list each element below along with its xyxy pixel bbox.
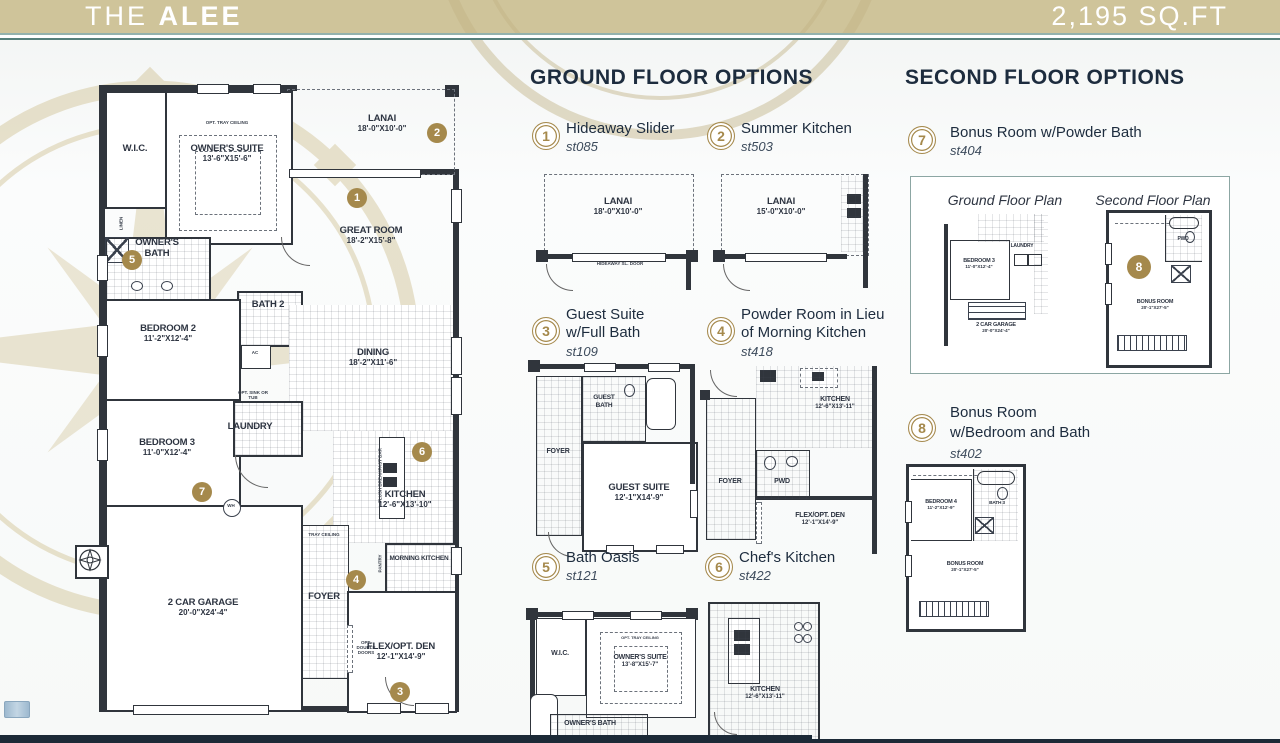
- option-label: w/Bedroom and Bath: [950, 424, 1090, 441]
- stairs: [1117, 335, 1187, 351]
- door-swing: [710, 370, 737, 397]
- room-dims: 12'-1"X14'-9": [594, 493, 684, 502]
- wall: [686, 250, 698, 262]
- room-label: BATH 3: [983, 501, 1011, 507]
- room-label: FLEX/OPT. DEN: [351, 641, 451, 652]
- wall: [528, 360, 540, 372]
- room-bedroom2: [105, 299, 241, 401]
- room-dims: 20'-1"X27'-5": [1119, 305, 1191, 310]
- opt-double-doors: [756, 502, 762, 544]
- diagram-hideaway-slider: LANAI 18'-0"X10'-0" HIDEAWAY SL. DOOR: [528, 164, 700, 304]
- room-dims: 13'-6"X15'-6": [187, 154, 267, 163]
- room-label: LANAI: [322, 113, 442, 124]
- room-label: W.I.C.: [536, 650, 584, 658]
- second-options-title: SECOND FLOOR OPTIONS: [905, 66, 1185, 90]
- window: [97, 255, 108, 281]
- square-footage: 2,195 SQ.FT: [1051, 1, 1228, 32]
- option-code: st109: [566, 344, 598, 359]
- option-circle-7: 7: [908, 126, 936, 154]
- door-swing: [546, 264, 573, 291]
- room-label: GREAT ROOM: [311, 225, 431, 236]
- room-dims: 12'-1"X14'-9": [351, 652, 451, 661]
- door-swing: [723, 264, 750, 291]
- tray-note: OPT. TRAY CEILING: [610, 636, 670, 640]
- door-swing: [281, 237, 310, 266]
- linen-note: LINEN: [120, 212, 125, 234]
- marker-2: 2: [427, 123, 447, 143]
- wall: [944, 224, 948, 346]
- option-code: st121: [566, 568, 598, 583]
- room-label: FLEX/OPT. DEN: [766, 512, 874, 520]
- diagram-chefs-kitchen: KITCHEN 12'-6"X13'-11": [706, 596, 828, 743]
- marker-3: 3: [390, 682, 410, 702]
- option-circle-6: 6: [705, 553, 733, 581]
- window: [451, 337, 462, 375]
- tub-fixture: [646, 378, 676, 430]
- room-dims: 13'-8"X15'-7": [610, 662, 670, 669]
- wall: [686, 262, 691, 290]
- marker-7: 7: [192, 482, 212, 502]
- option-label: Powder Room in Lieu: [741, 306, 884, 323]
- diagram-bonus-bedroom-bath: BEDROOM 4 11'-2"X12'-9" BATH 3 BONUS ROO…: [906, 464, 1026, 632]
- plan-title-name: ALEE: [159, 1, 243, 31]
- room-dims: 20'-0"X24'-4": [143, 608, 263, 617]
- room-dims: 11'-2"X12'-4": [108, 334, 228, 343]
- room-label: BEDROOM 3: [107, 437, 227, 448]
- room-dims: 12'-1"X14'-9": [766, 520, 874, 527]
- option-code: st402: [950, 446, 982, 461]
- option-label: w/Full Bath: [566, 324, 640, 341]
- diagram-summer-kitchen: LANAI 15'-0"X10'-0": [705, 164, 880, 304]
- option-circle-2: 2: [707, 122, 735, 150]
- tray-note: OPT. TRAY CEILING: [197, 121, 257, 126]
- room-dims: 20'-0"X24'-4": [960, 328, 1032, 333]
- room-foyer: [706, 398, 756, 540]
- room-label: DINING: [313, 347, 433, 358]
- shower-fixture: [1171, 265, 1191, 283]
- compass-watermark-arcs: [430, 0, 890, 180]
- marker-4: 4: [346, 570, 366, 590]
- window: [656, 545, 684, 554]
- option-label: Bonus Room: [950, 404, 1037, 421]
- room-dims: 18'-0"X10'-0": [558, 207, 678, 216]
- window: [367, 703, 401, 714]
- room-label: OWNER'S BATH: [560, 720, 620, 728]
- window: [584, 363, 616, 372]
- option-label: of Morning Kitchen: [741, 324, 866, 341]
- window: [451, 189, 462, 223]
- room-label: KITCHEN: [790, 396, 880, 404]
- plan-title-prefix: THE: [85, 1, 148, 31]
- room-label: W.I.C.: [105, 143, 165, 154]
- footer-bar-thin: [812, 739, 1280, 743]
- option-circle-5: 5: [532, 553, 560, 581]
- option-label: Bonus Room w/Powder Bath: [950, 124, 1142, 141]
- mini-second-plan: 8 PWD BONUS ROOM 20'-1"X27'-5": [1106, 210, 1212, 368]
- room-label: FOYER: [301, 591, 347, 602]
- option-label: Bath Oasis: [566, 549, 639, 566]
- stairs: [919, 601, 989, 617]
- room-dims: 15'-0"X10'-0": [721, 207, 841, 216]
- room-label: FOYER: [536, 448, 580, 456]
- option-code: st085: [566, 139, 598, 154]
- room-dims: 12'-6"X13'-11": [790, 404, 880, 411]
- room-label: 2 CAR GARAGE: [143, 597, 263, 608]
- wall: [713, 250, 725, 262]
- inset-ground-title: Ground Floor Plan: [930, 192, 1080, 208]
- range-fixture: [383, 463, 397, 473]
- ground-options-title: GROUND FLOOR OPTIONS: [530, 66, 813, 90]
- garage-door: [133, 705, 269, 715]
- option-circle-3: 3: [532, 317, 560, 345]
- option-circle-1: 1: [532, 122, 560, 150]
- room-dims: 18'-2"X11'-6": [313, 358, 433, 367]
- option-code: st404: [950, 143, 982, 158]
- room-morning-kitchen: [385, 543, 457, 597]
- sliding-door: [289, 169, 421, 178]
- option-code: st422: [739, 568, 771, 583]
- option-label: Summer Kitchen: [741, 120, 852, 137]
- diagram-bath-oasis: W.I.C. OPT. TRAY CEILING OWNER'S SUITE 1…: [526, 596, 704, 743]
- option-label: Guest Suite: [566, 306, 644, 323]
- brochure-page: THE ALEE 2,195 SQ.FT LANAI 18'-0"X10'-0"…: [0, 0, 1280, 743]
- ac-pad: [241, 345, 271, 369]
- room-label: GUEST BATH: [586, 394, 622, 409]
- compass-icon: [77, 547, 103, 573]
- room-label: PWD: [760, 478, 804, 486]
- room-dims: 11'-0"X12'-4": [107, 448, 227, 457]
- room-label: OWNER'S SUITE: [610, 654, 670, 662]
- tray-note2: TRAY CEILING: [305, 533, 343, 538]
- option-label: Chef's Kitchen: [739, 549, 835, 566]
- option-code: st418: [741, 344, 773, 359]
- window: [97, 325, 108, 357]
- room-dims: 11'-2"X12'-9": [911, 505, 971, 510]
- room-label: KITCHEN: [730, 686, 800, 694]
- stairs: [968, 302, 1026, 320]
- sink-fixture: [161, 281, 173, 291]
- room-label: LAUNDRY: [1002, 244, 1042, 250]
- room-dims: 20'-1"X27'-5": [929, 567, 1001, 572]
- window: [197, 84, 229, 94]
- room-pwd: [756, 450, 810, 500]
- mini-ground-plan: BEDROOM 3 11'-0"X12'-4" LAUNDRY 2 CAR GA…: [944, 214, 1048, 364]
- summer-kitchen-counter: [841, 176, 867, 252]
- marker-1: 1: [347, 188, 367, 208]
- wall: [690, 364, 695, 484]
- window: [451, 547, 462, 575]
- plan-title: THE ALEE: [85, 1, 243, 32]
- room-label: FOYER: [706, 478, 754, 486]
- room-dims: 12'-6"X13'-11": [730, 694, 800, 701]
- option-code: st503: [741, 139, 773, 154]
- room-dims: 18'-0"X10'-0": [322, 124, 442, 133]
- header-rule: [0, 33, 1280, 40]
- diagram-powder-room: KITCHEN 12'-6"X13'-11" PWD FOYER FLEX/OP…: [700, 360, 880, 556]
- marker-5: 5: [122, 250, 142, 270]
- room-label: LANAI: [721, 196, 841, 207]
- option-circle-4: 4: [707, 317, 735, 345]
- room-label: MORNING KITCHEN: [389, 555, 449, 563]
- window: [648, 363, 680, 372]
- sink-fixture: [131, 281, 143, 291]
- room-dims: 18'-2"X15'-8": [311, 236, 431, 245]
- option-circle-8: 8: [908, 414, 936, 442]
- room-label: OWNER'S SUITE: [187, 143, 267, 154]
- opt-sink-note: OPT. SINK OR TUB: [235, 391, 271, 401]
- footer-bar: [0, 735, 812, 743]
- window: [451, 377, 462, 415]
- slider-note: HIDEAWAY SL. DOOR: [580, 262, 660, 267]
- window: [253, 84, 281, 94]
- room-label: LANAI: [558, 196, 678, 207]
- main-floor-plan: LANAI 18'-0"X10'-0" W.I.C. OPT. TRAY CEI…: [85, 85, 470, 717]
- range-fixture: [383, 477, 397, 487]
- marker-8: 8: [1127, 255, 1151, 279]
- washer-dryer: [1014, 254, 1028, 266]
- diagram-guest-suite: FOYER GUEST BATH GUEST SUITE 12'-1"X14'-…: [528, 360, 700, 556]
- pdf-artifact-icon: [4, 701, 30, 718]
- site-compass: [75, 545, 109, 579]
- ac-note: AC: [241, 351, 269, 356]
- window: [690, 490, 698, 518]
- room-dining: [289, 305, 453, 431]
- wall: [530, 612, 692, 617]
- room-label: KITCHEN: [355, 489, 455, 500]
- window: [630, 611, 662, 620]
- window: [1105, 243, 1112, 265]
- room-label: GUEST SUITE: [594, 482, 684, 493]
- room-label: PWD: [1165, 237, 1201, 243]
- window: [1105, 283, 1112, 305]
- window: [905, 555, 912, 577]
- wh-note: WH: [223, 504, 239, 509]
- inset-second-title: Second Floor Plan: [1078, 192, 1228, 208]
- room-dims: 11'-0"X12'-4": [950, 264, 1008, 269]
- pantry-note: PANTRY: [379, 549, 384, 577]
- room-bedroom3: [950, 240, 1010, 300]
- room-label: BEDROOM 2: [108, 323, 228, 334]
- room-label: LAUNDRY: [220, 421, 280, 432]
- room-label: BATH 2: [251, 299, 285, 310]
- window: [415, 703, 449, 714]
- window: [562, 611, 594, 620]
- marker-6: 6: [412, 442, 432, 462]
- option-label: Hideaway Slider: [566, 120, 674, 137]
- sliding-door: [745, 253, 827, 262]
- wall: [536, 250, 548, 262]
- tiled-area: [1034, 214, 1048, 314]
- room-dims: 12'-6"X13'-10": [355, 500, 455, 509]
